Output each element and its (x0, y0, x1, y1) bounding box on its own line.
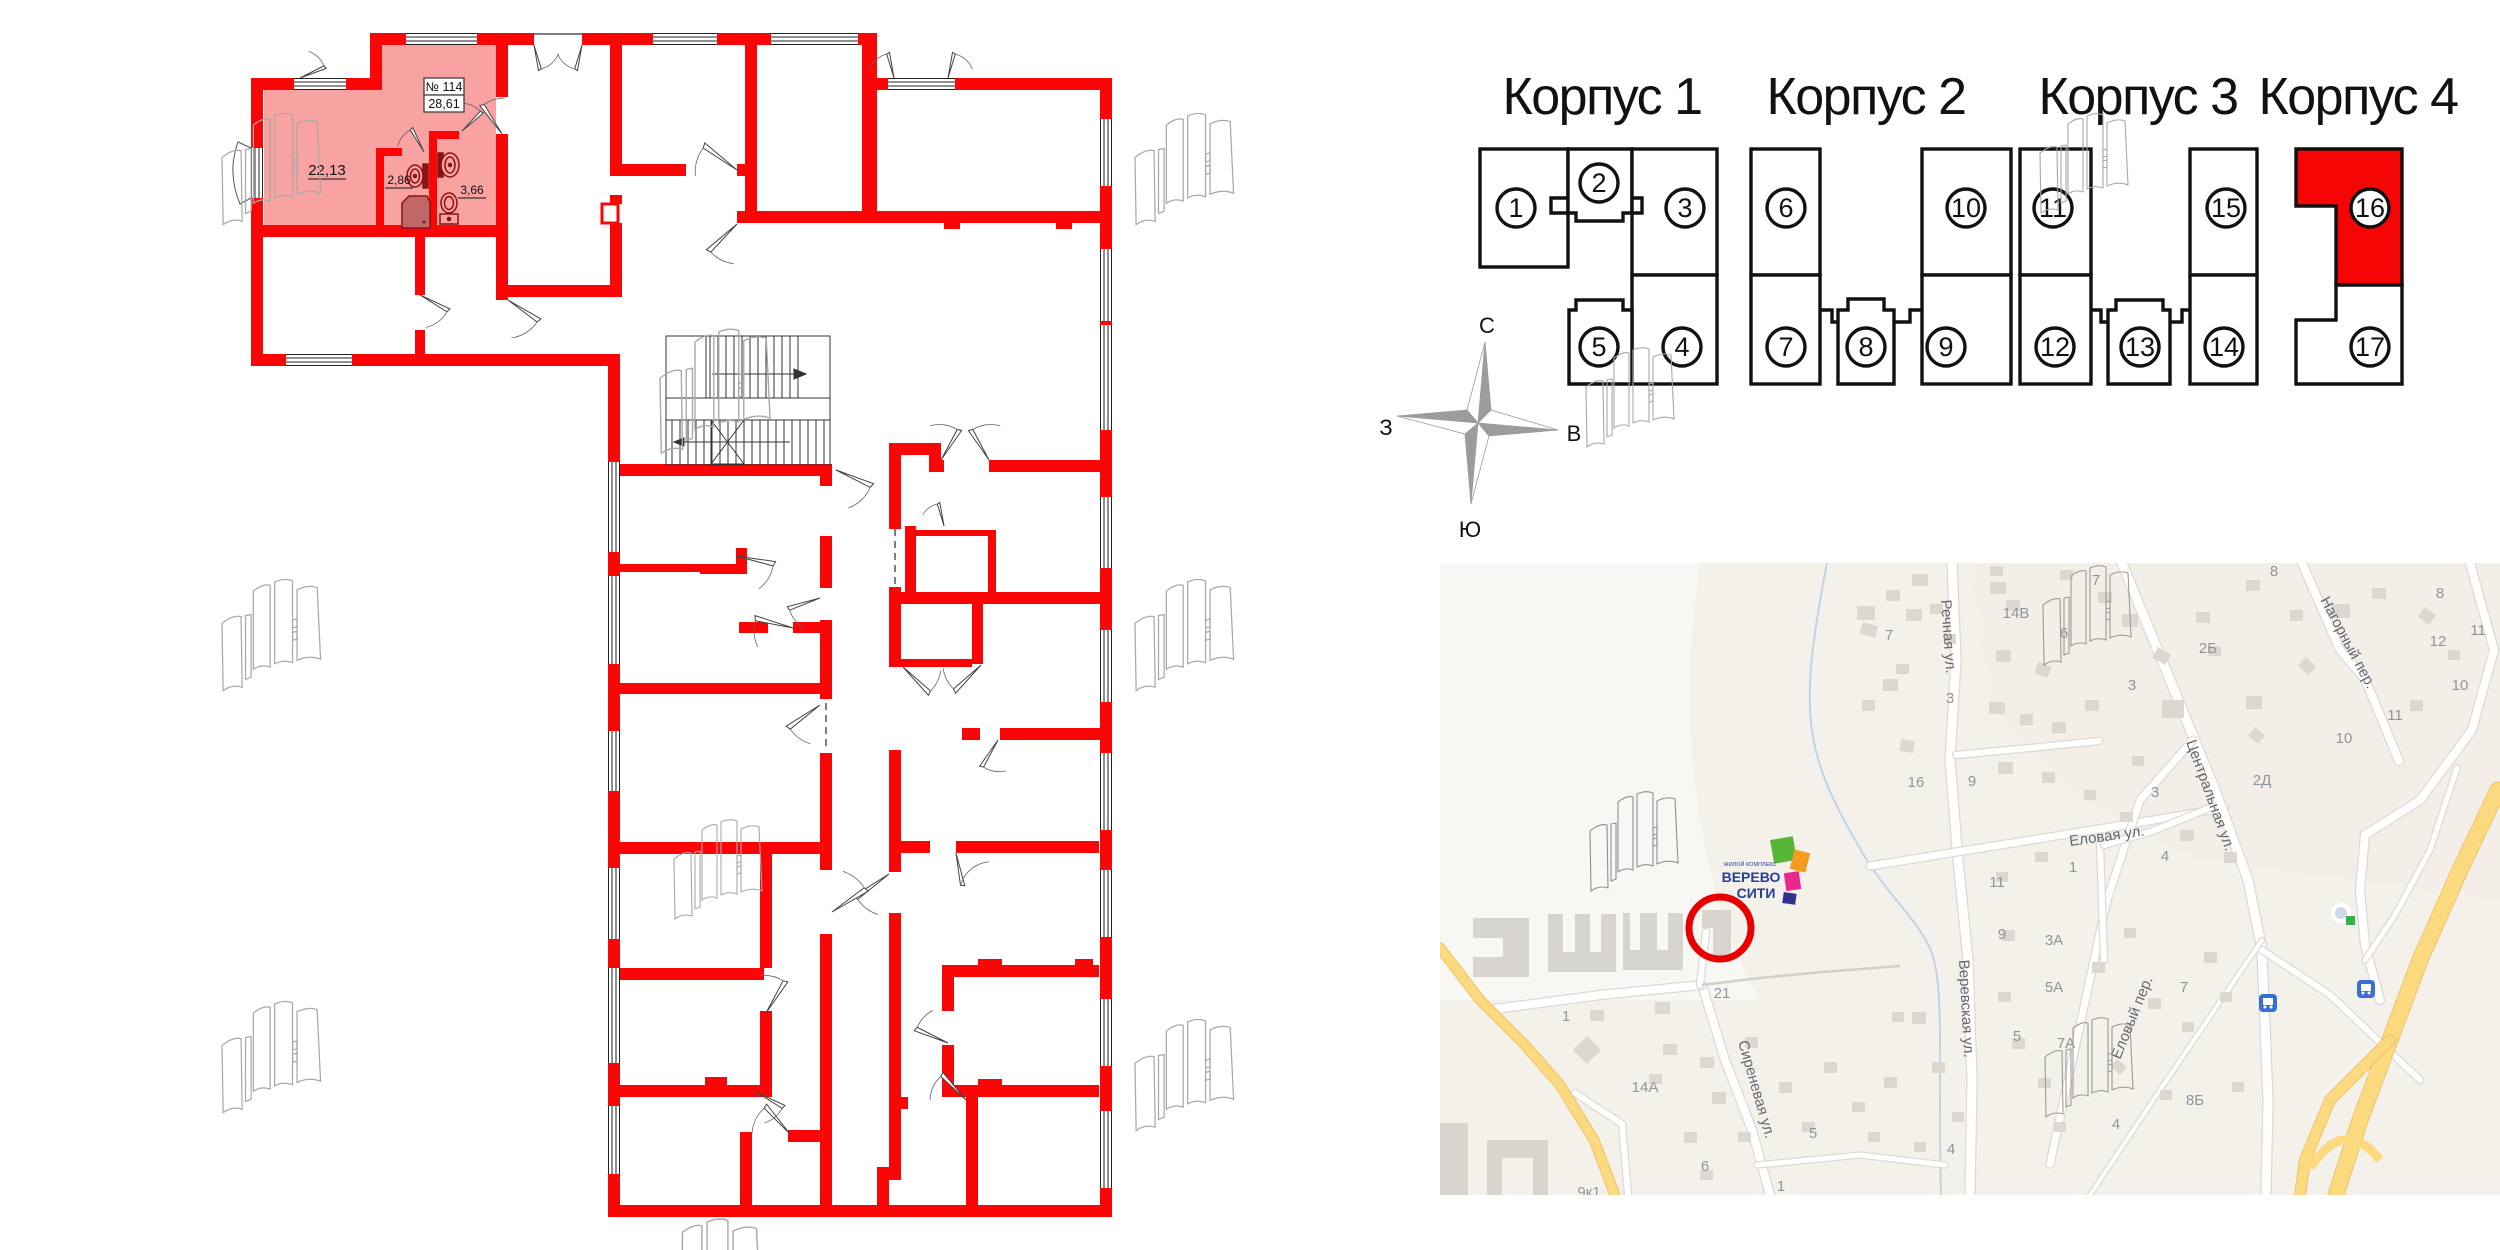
svg-text:2Д: 2Д (2253, 772, 2272, 789)
svg-text:10: 10 (2452, 677, 2469, 694)
svg-text:5: 5 (1591, 332, 1606, 362)
svg-text:11: 11 (2387, 707, 2403, 724)
svg-text:11: 11 (2470, 622, 2486, 639)
svg-text:12: 12 (2430, 633, 2447, 650)
svg-text:8: 8 (2436, 585, 2444, 602)
svg-text:3: 3 (1946, 690, 1954, 707)
svg-text:8Б: 8Б (2186, 1092, 2204, 1109)
svg-text:3А: 3А (2045, 932, 2063, 949)
svg-text:12: 12 (2040, 332, 2070, 362)
svg-text:14А: 14А (1632, 1079, 1659, 1096)
svg-text:14В: 14В (2003, 605, 2030, 622)
svg-text:№ 114: № 114 (426, 80, 463, 94)
svg-text:9: 9 (1998, 926, 2006, 943)
svg-text:10: 10 (1951, 193, 1981, 223)
svg-text:7: 7 (1885, 627, 1893, 644)
svg-text:Корпус 4: Корпус 4 (2258, 68, 2458, 126)
svg-text:4: 4 (2112, 1116, 2120, 1133)
svg-text:ВЕРЕВО: ВЕРЕВО (1722, 869, 1781, 885)
svg-text:СИТИ: СИТИ (1737, 885, 1776, 901)
svg-text:З: З (1379, 415, 1392, 440)
svg-text:3: 3 (2151, 784, 2159, 801)
svg-text:6: 6 (1778, 193, 1793, 223)
svg-text:6: 6 (1701, 1158, 1709, 1175)
svg-text:7: 7 (2180, 979, 2188, 996)
svg-text:21: 21 (1714, 985, 1731, 1002)
svg-text:3: 3 (1677, 193, 1692, 223)
svg-text:Корпус 2: Корпус 2 (1766, 68, 1965, 126)
svg-text:8: 8 (2270, 563, 2278, 580)
svg-text:4: 4 (1674, 332, 1689, 362)
svg-text:7: 7 (2092, 572, 2100, 589)
svg-text:1: 1 (1562, 1008, 1570, 1025)
svg-text:Корпус 3: Корпус 3 (2038, 68, 2237, 126)
svg-text:3,66: 3,66 (460, 183, 484, 197)
svg-text:13: 13 (2125, 332, 2155, 362)
svg-text:9: 9 (1968, 773, 1976, 790)
svg-text:2: 2 (1591, 168, 1606, 198)
svg-text:Корпус 1: Корпус 1 (1502, 68, 1701, 126)
svg-text:7: 7 (1778, 332, 1793, 362)
svg-text:5: 5 (1809, 1125, 1817, 1142)
svg-text:11: 11 (2039, 193, 2067, 223)
svg-text:Ю: Ю (1459, 517, 1481, 542)
svg-text:1: 1 (2069, 859, 2077, 876)
svg-text:11: 11 (1989, 874, 2005, 891)
svg-text:9к1: 9к1 (1577, 1184, 1600, 1201)
svg-text:ЖИЛОЙ КОМПЛЕКС: ЖИЛОЙ КОМПЛЕКС (1724, 860, 1777, 868)
svg-text:10: 10 (2336, 730, 2353, 747)
svg-text:С: С (1479, 313, 1495, 338)
svg-text:2,86: 2,86 (387, 173, 411, 187)
svg-text:5: 5 (2013, 1028, 2021, 1045)
svg-text:1: 1 (1777, 1178, 1785, 1195)
svg-text:4: 4 (2161, 848, 2169, 865)
svg-text:16: 16 (2355, 193, 2385, 223)
svg-text:9: 9 (1938, 332, 1953, 362)
svg-text:22,13: 22,13 (308, 162, 346, 179)
svg-text:В: В (1567, 421, 1582, 446)
svg-text:17: 17 (2355, 332, 2385, 362)
svg-text:3: 3 (2128, 677, 2136, 694)
svg-text:14: 14 (2209, 332, 2239, 362)
svg-text:1: 1 (1508, 193, 1523, 223)
svg-text:2Б: 2Б (2199, 640, 2217, 657)
svg-text:15: 15 (2211, 193, 2241, 223)
svg-text:28,61: 28,61 (428, 97, 459, 111)
svg-text:4: 4 (1947, 1141, 1955, 1158)
svg-text:16: 16 (1908, 774, 1925, 791)
svg-text:8: 8 (1858, 332, 1873, 362)
svg-text:5А: 5А (2045, 979, 2063, 996)
